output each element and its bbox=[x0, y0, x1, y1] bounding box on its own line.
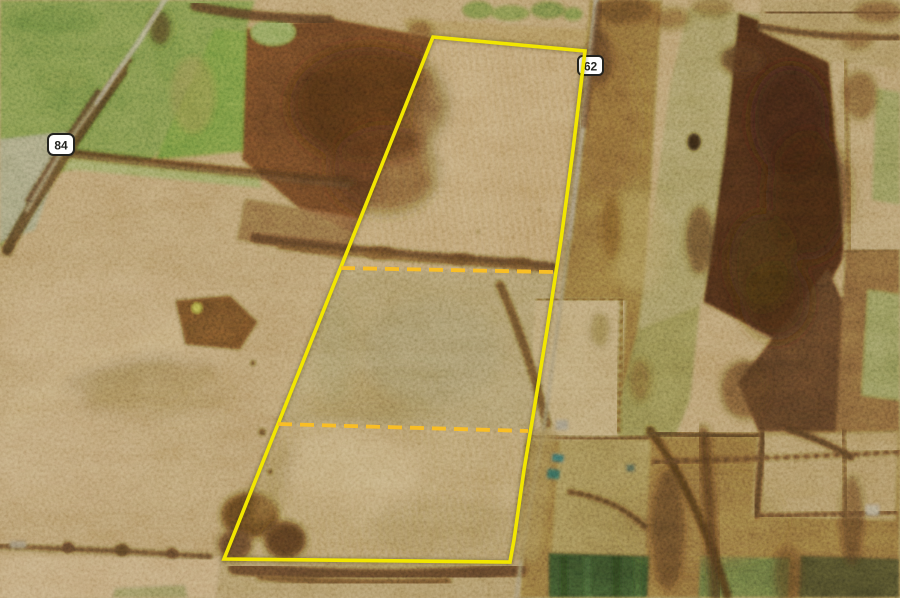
svg-text:84: 84 bbox=[54, 139, 68, 153]
